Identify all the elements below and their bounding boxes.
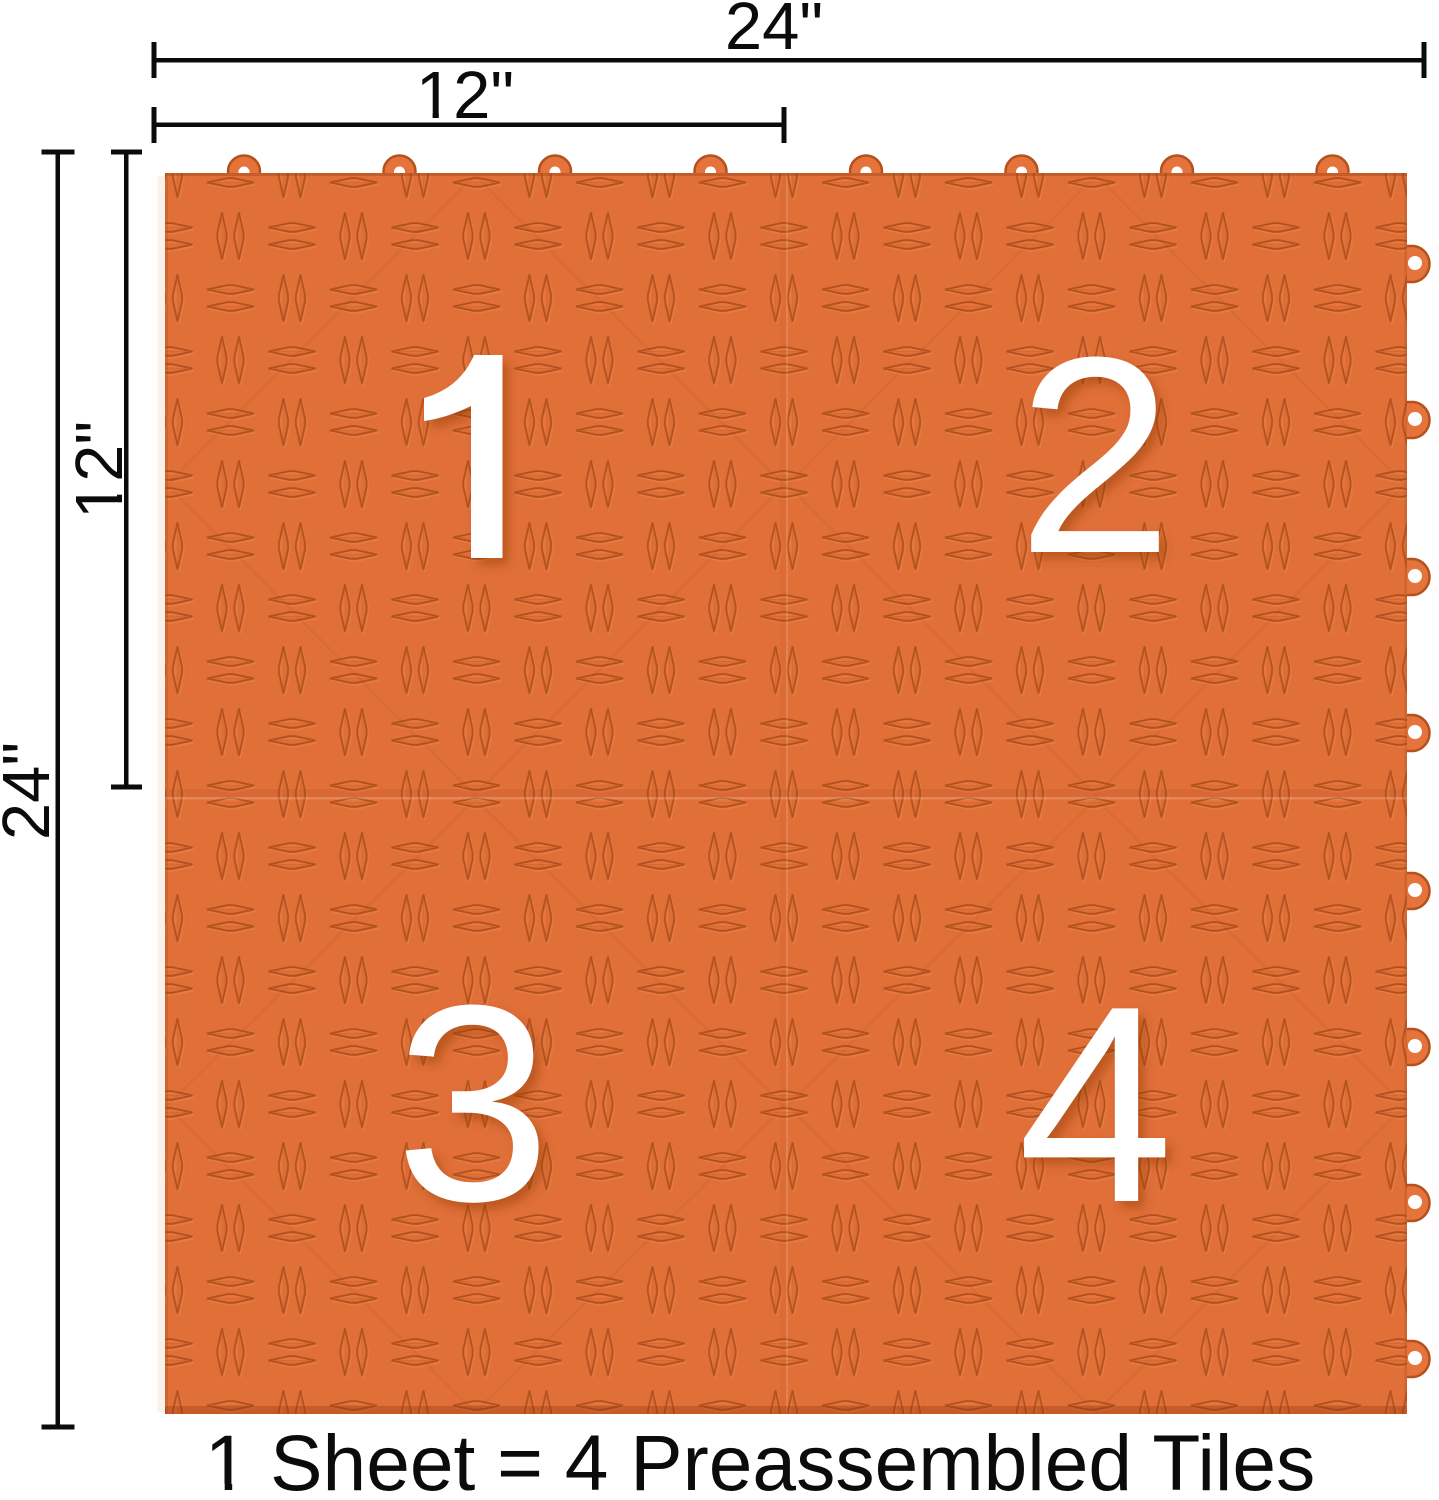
svg-text:3: 3 (395, 948, 551, 1260)
svg-text:12": 12" (62, 421, 137, 519)
svg-text:12": 12" (416, 58, 514, 133)
svg-text:24": 24" (0, 742, 64, 840)
svg-text:24": 24" (725, 0, 823, 64)
svg-text:1 Sheet = 4 Preassembled Tiles: 1 Sheet = 4 Preassembled Tiles (205, 1419, 1316, 1500)
svg-text:2: 2 (1017, 300, 1173, 612)
svg-text:4: 4 (1018, 949, 1174, 1261)
